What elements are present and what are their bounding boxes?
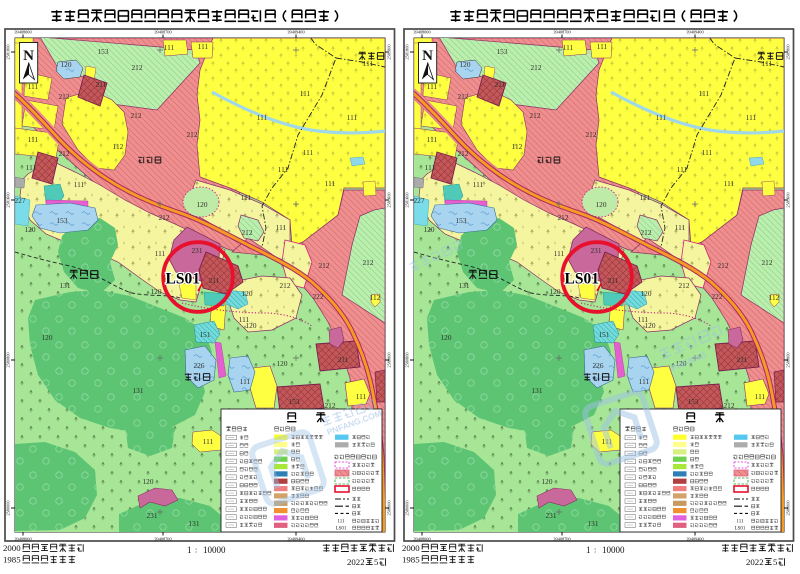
svg-text:120: 120 (143, 477, 154, 486)
svg-text:N: N (422, 48, 433, 64)
svg-text:111: 111 (699, 89, 710, 98)
svg-text:LS01: LS01 (565, 271, 599, 288)
svg-text:120: 120 (242, 289, 253, 298)
svg-text:39408000: 39408000 (14, 30, 31, 35)
svg-text:10000: 10000 (203, 545, 226, 555)
svg-text:111: 111 (597, 42, 608, 51)
svg-text:112: 112 (512, 142, 523, 151)
svg-text:39409400: 39409400 (686, 30, 703, 35)
svg-text:LS01: LS01 (336, 527, 347, 532)
svg-text:1: 1 (187, 545, 192, 555)
svg-text:111: 111 (28, 135, 39, 144)
svg-text:2000: 2000 (3, 543, 21, 553)
svg-text:131: 131 (532, 386, 543, 395)
svg-text:151: 151 (599, 330, 610, 339)
svg-text:111: 111 (337, 520, 345, 525)
svg-text:111: 111 (300, 89, 311, 98)
svg-text:2580800: 2580800 (6, 352, 11, 367)
svg-text:39409400: 39409400 (287, 537, 304, 542)
svg-text:212: 212 (531, 63, 542, 72)
svg-text:120: 120 (42, 333, 53, 342)
svg-text:111: 111 (762, 59, 773, 68)
svg-text:39408700: 39408700 (154, 30, 171, 35)
svg-text:2581800: 2581800 (6, 44, 11, 59)
svg-text:153: 153 (497, 47, 508, 56)
svg-text:211: 211 (209, 276, 220, 285)
svg-text:111: 111 (164, 43, 175, 52)
svg-text:LS01: LS01 (735, 527, 746, 532)
svg-text:120: 120 (424, 225, 435, 234)
svg-text:111: 111 (26, 163, 37, 172)
svg-text:212: 212 (187, 130, 198, 139)
svg-text:2581600: 2581600 (6, 192, 11, 207)
svg-text:2580000: 2580000 (6, 500, 11, 515)
svg-text:111: 111 (325, 179, 336, 188)
svg-text:111: 111 (240, 377, 251, 386)
svg-text:2581600: 2581600 (405, 192, 410, 207)
svg-text:5: 5 (773, 557, 778, 567)
svg-text:222: 222 (712, 292, 723, 301)
svg-text:2022: 2022 (746, 557, 764, 567)
svg-text:212: 212 (530, 111, 541, 120)
svg-text:120: 120 (460, 60, 471, 69)
svg-text:231: 231 (591, 246, 602, 255)
svg-text:120: 120 (151, 287, 162, 296)
svg-text:212: 212 (59, 149, 70, 158)
svg-text:226: 226 (194, 361, 205, 370)
svg-text:111: 111 (276, 223, 287, 232)
svg-text:111: 111 (356, 392, 367, 401)
svg-text:LS01: LS01 (166, 271, 200, 288)
svg-text:111: 111 (702, 148, 713, 157)
svg-text:111: 111 (724, 179, 735, 188)
svg-text:2580800: 2580800 (405, 352, 410, 367)
svg-text:120: 120 (645, 321, 656, 330)
svg-text:39408000: 39408000 (14, 537, 31, 542)
svg-text:153: 153 (98, 47, 109, 56)
svg-text:227: 227 (15, 196, 26, 205)
svg-text:231: 231 (147, 511, 158, 520)
svg-text:227: 227 (414, 196, 425, 205)
svg-text:212: 212 (159, 213, 170, 222)
svg-text:10000: 10000 (602, 545, 625, 555)
svg-text:120: 120 (246, 321, 257, 330)
svg-text:39408700: 39408700 (553, 30, 570, 35)
svg-text:111: 111 (347, 113, 358, 122)
svg-text:112: 112 (769, 293, 780, 302)
svg-text::: : (195, 545, 197, 554)
svg-text:212: 212 (641, 228, 652, 237)
svg-text:111: 111 (675, 223, 686, 232)
svg-text:112: 112 (370, 293, 381, 302)
svg-text:212: 212 (59, 92, 70, 101)
svg-text:153: 153 (289, 397, 300, 406)
svg-text:111: 111 (746, 113, 757, 122)
svg-text:111: 111 (755, 392, 766, 401)
svg-text:39408700: 39408700 (154, 537, 171, 542)
svg-text:120: 120 (61, 60, 72, 69)
svg-text:111: 111 (554, 249, 565, 258)
svg-text:111: 111 (241, 193, 252, 202)
svg-text:111: 111 (425, 163, 436, 172)
svg-text:2022: 2022 (347, 557, 365, 567)
svg-text:2580000: 2580000 (405, 500, 410, 515)
svg-text:39408000: 39408000 (413, 537, 430, 542)
svg-text:111: 111 (278, 165, 289, 174)
svg-text:1985: 1985 (3, 555, 21, 565)
svg-text:212: 212 (242, 228, 253, 237)
svg-text:231: 231 (192, 246, 203, 255)
svg-text:111: 111 (155, 249, 166, 258)
svg-text:39409400: 39409400 (287, 30, 304, 35)
svg-text:120: 120 (25, 225, 36, 234)
svg-text:212: 212 (319, 261, 330, 270)
svg-text:5: 5 (374, 557, 379, 567)
svg-text:212: 212 (131, 111, 142, 120)
svg-text:111: 111 (303, 148, 314, 157)
svg-text:111: 111 (563, 43, 574, 52)
svg-text:111: 111 (74, 180, 85, 189)
svg-text:131: 131 (133, 386, 144, 395)
svg-text:2000: 2000 (402, 543, 420, 553)
svg-text:1: 1 (586, 545, 591, 555)
svg-text:212: 212 (679, 281, 690, 290)
svg-text:211: 211 (495, 80, 506, 89)
svg-text:120: 120 (596, 200, 607, 209)
svg-text:212: 212 (458, 92, 469, 101)
svg-text:111: 111 (473, 180, 484, 189)
svg-text:212: 212 (280, 281, 291, 290)
svg-text:212: 212 (458, 149, 469, 158)
svg-text:211: 211 (737, 355, 748, 364)
svg-text:111: 111 (198, 42, 209, 51)
svg-text:212: 212 (762, 258, 773, 267)
svg-text:211: 211 (338, 355, 349, 364)
svg-text:120: 120 (277, 359, 288, 368)
svg-text:212: 212 (132, 63, 143, 72)
svg-text:39409400: 39409400 (686, 537, 703, 542)
svg-text:1985: 1985 (402, 555, 420, 565)
svg-text:153: 153 (57, 216, 68, 225)
svg-text:231: 231 (546, 511, 557, 520)
svg-text:39408700: 39408700 (553, 537, 570, 542)
svg-text:212: 212 (363, 258, 374, 267)
svg-text:N: N (23, 48, 34, 64)
svg-text:222: 222 (313, 292, 324, 301)
svg-text:212: 212 (718, 261, 729, 270)
svg-text:111: 111 (656, 113, 667, 122)
svg-text:151: 151 (200, 330, 211, 339)
svg-text:212: 212 (586, 130, 597, 139)
svg-text:120: 120 (197, 200, 208, 209)
svg-text:120: 120 (441, 333, 452, 342)
svg-text:111: 111 (203, 437, 214, 446)
svg-text:131: 131 (588, 519, 599, 528)
svg-text:111: 111 (363, 59, 374, 68)
svg-text:120: 120 (641, 289, 652, 298)
svg-text:111: 111 (736, 520, 744, 525)
svg-text:153: 153 (688, 397, 699, 406)
svg-text:153: 153 (456, 216, 467, 225)
svg-text:2581800: 2581800 (405, 44, 410, 59)
svg-text:111: 111 (257, 113, 268, 122)
svg-text:112: 112 (113, 142, 124, 151)
svg-text:211: 211 (96, 80, 107, 89)
svg-text:111: 111 (639, 377, 650, 386)
svg-text:111: 111 (427, 135, 438, 144)
svg-text:226: 226 (593, 361, 604, 370)
svg-text:131: 131 (459, 281, 470, 290)
svg-text:111: 111 (640, 193, 651, 202)
svg-text:111: 111 (677, 165, 688, 174)
svg-text:120: 120 (550, 287, 561, 296)
svg-text:131: 131 (60, 281, 71, 290)
svg-text:212: 212 (558, 213, 569, 222)
svg-text:39408000: 39408000 (413, 30, 430, 35)
svg-text:131: 131 (189, 519, 200, 528)
svg-text:211: 211 (608, 276, 619, 285)
svg-text:120: 120 (542, 477, 553, 486)
svg-text::: : (594, 545, 596, 554)
